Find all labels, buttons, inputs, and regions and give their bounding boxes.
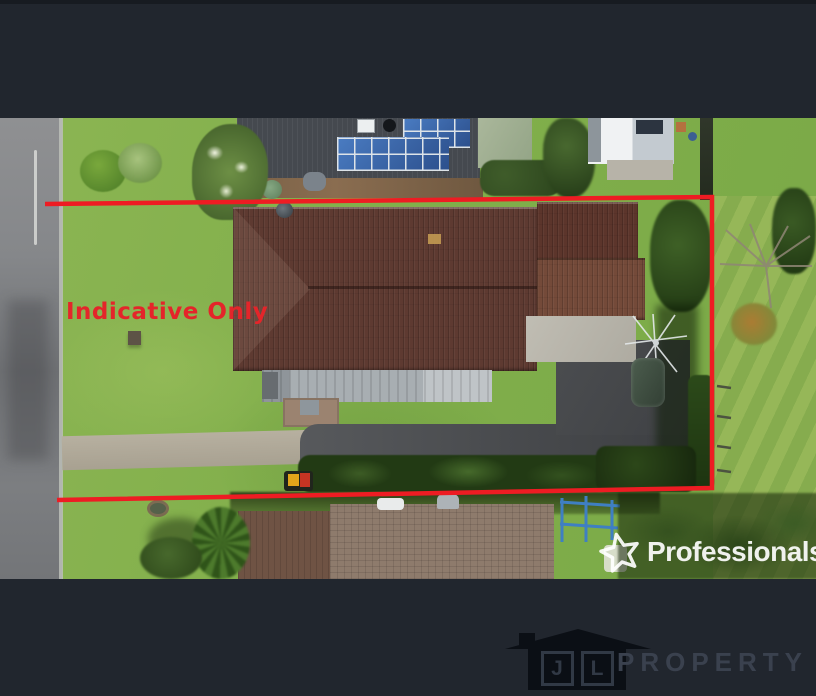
roof-ridge-line <box>308 286 537 289</box>
yard-object-round <box>688 132 697 141</box>
concrete-apron <box>526 316 636 362</box>
indicative-only-label: Indicative Only <box>66 299 268 325</box>
autumn-tree <box>731 303 777 345</box>
porch <box>262 372 278 399</box>
top-letterbox-bar <box>0 0 816 118</box>
white-car <box>377 498 404 510</box>
yard-object <box>676 122 686 132</box>
patio-structure <box>300 400 319 415</box>
flowering-tree <box>192 124 268 220</box>
monogram-l: L <box>581 651 614 686</box>
roof-vent-main <box>428 234 441 244</box>
front-hedge <box>298 455 608 492</box>
agency-watermark: Professionals <box>598 531 816 573</box>
shed-side <box>588 118 601 162</box>
gray-shelter <box>437 494 459 509</box>
satellite-dish-icon <box>276 202 293 218</box>
shed-solar-panel <box>636 120 663 134</box>
roof-right-wing-upper <box>537 202 638 258</box>
property-brand-text: PROPERTY <box>617 647 808 678</box>
roof-right-wing-lower <box>537 258 645 320</box>
skylight <box>357 119 375 133</box>
palm-tree <box>192 507 250 579</box>
bottom-letterbox-bar <box>0 579 816 696</box>
house-body-icon: J L <box>528 647 626 690</box>
boundary-fence-line <box>700 118 713 200</box>
vehicle-yellow-panel <box>288 474 299 486</box>
roof-vent-north <box>383 119 396 132</box>
solar-panels-lower <box>337 137 449 171</box>
garden-ring <box>147 500 169 517</box>
front-path <box>62 430 315 471</box>
paddock-fence <box>714 382 734 474</box>
hot-water-cylinder <box>303 172 326 191</box>
roof-hip-shading <box>233 207 310 371</box>
road-edge-line <box>34 150 37 245</box>
front-hedge-shaded <box>596 446 696 492</box>
flowering-bush <box>118 143 162 183</box>
vehicle-red-panel <box>300 473 310 487</box>
side-garden-trees <box>650 200 712 312</box>
neighbor-roof-southwest <box>238 511 331 579</box>
letterbox <box>128 331 141 345</box>
listing-photo-frame: Indicative Only Professionals J L PROPER… <box>0 0 816 696</box>
monogram-j: J <box>541 651 574 686</box>
bare-tree <box>716 222 816 310</box>
road-curb <box>59 118 63 579</box>
star-icon <box>598 531 642 573</box>
shed-concrete-pad <box>607 160 673 180</box>
agency-watermark-text: Professionals <box>647 536 816 568</box>
shrubs <box>140 537 202 579</box>
neighbor-roof-south <box>330 504 554 579</box>
covered-boat <box>631 358 665 407</box>
road-patch <box>8 300 48 460</box>
